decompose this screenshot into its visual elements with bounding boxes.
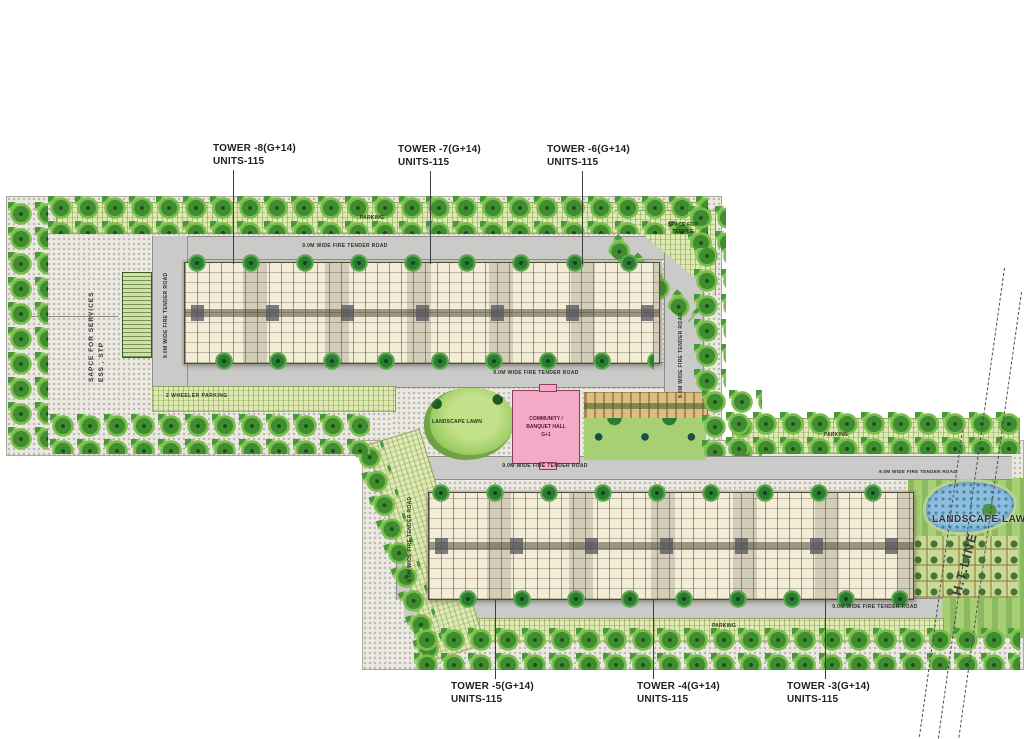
upper-tower-building	[184, 262, 660, 364]
tower-5-units: UNITS-115	[451, 694, 534, 707]
community-label-line3: G+1	[541, 432, 551, 438]
kids-play-lawn	[584, 418, 706, 460]
tower-7-label: TOWER -7(G+14) UNITS-115	[398, 144, 481, 169]
community-label-line1: COMMUNITY /	[529, 416, 563, 422]
tree-row-right-top	[726, 412, 1022, 454]
upper-left-road	[152, 236, 188, 386]
tower-6-leader-line	[582, 171, 583, 264]
road-label: 9.0M WIDE FIRE TENDER ROAD	[407, 482, 414, 597]
tower-8-units: UNITS-115	[213, 156, 296, 169]
road-label: 9.0M WIDE FIRE TENDER ROAD	[678, 280, 685, 430]
upper-building-palms-bottom	[188, 352, 654, 370]
tower-8-name: TOWER -8(G+14)	[213, 143, 296, 156]
tower-3-name: TOWER -3(G+14)	[787, 681, 870, 694]
services-label-line1: SAPCE FOR SERVICES	[88, 250, 95, 382]
lower-building-palms-top	[432, 484, 908, 502]
community-building: COMMUNITY / BANQUET HALL G+1	[512, 390, 580, 464]
tower-5-label: TOWER -5(G+14) UNITS-115	[451, 681, 534, 706]
parking-label-top: PARKING	[360, 215, 384, 222]
parking-label-right: PARKING	[824, 432, 848, 439]
services-label-line2: ESS , STP	[98, 250, 105, 382]
tower-5-name: TOWER -5(G+14)	[451, 681, 534, 694]
ess-stp-block	[122, 272, 152, 358]
tower-7-units: UNITS-115	[398, 157, 481, 170]
tower-3-units: UNITS-115	[787, 694, 870, 707]
temple-label: SPACE FOR TEMPLE	[662, 222, 704, 235]
tower-3-label: TOWER -3(G+14) UNITS-115	[787, 681, 870, 706]
two-wheeler-parking-label: 2 WHEELER PARKING	[166, 393, 228, 400]
tower-6-units: UNITS-115	[547, 157, 630, 170]
lower-tower-building	[428, 492, 914, 600]
tower-6-name: TOWER -6(G+14)	[547, 144, 630, 157]
tree-row-bottom-left	[50, 414, 370, 454]
parking-label-bottom: PARKING	[712, 623, 736, 630]
tower-6-label: TOWER -6(G+14) UNITS-115	[547, 144, 630, 169]
site-plan: 9.0M WIDE FIRE TENDER ROAD 9.0M WIDE FIR…	[0, 0, 1024, 739]
tree-column-right-upper	[694, 244, 726, 390]
tower-7-leader-line	[430, 171, 431, 264]
pergola-strip	[584, 392, 708, 420]
tower-7-name: TOWER -7(G+14)	[398, 144, 481, 157]
community-label-line2: BANQUET HALL	[526, 424, 565, 430]
road-label: 9.0M WIDE FIRE TENDER ROAD	[255, 243, 435, 250]
tower-8-leader-line	[233, 170, 234, 264]
road-label: 9.0M WIDE FIRE TENDER ROAD	[455, 463, 635, 470]
tower-3-leader-line	[825, 600, 826, 679]
upper-building-palms-top	[188, 254, 654, 272]
services-label: SAPCE FOR SERVICES ESS , STP	[88, 250, 105, 382]
tower-4-units: UNITS-115	[637, 694, 720, 707]
tree-column-left	[8, 202, 48, 452]
tower-4-leader-line	[653, 600, 654, 679]
road-label: 9.0M WIDE FIRE TENDER ROAD	[163, 250, 170, 380]
tower-5-leader-line	[495, 600, 496, 679]
road-label: 9.0M WIDE FIRE TENDER ROAD	[446, 370, 626, 377]
tower-4-name: TOWER -4(G+14)	[637, 681, 720, 694]
landscape-lawn-label-mid: LANDSCAPE LAWN	[432, 419, 482, 426]
road-label: 9.0M WIDE FIRE TENDER ROAD	[800, 604, 950, 611]
tower-8-label: TOWER -8(G+14) UNITS-115	[213, 143, 296, 168]
tower-4-label: TOWER -4(G+14) UNITS-115	[637, 681, 720, 706]
